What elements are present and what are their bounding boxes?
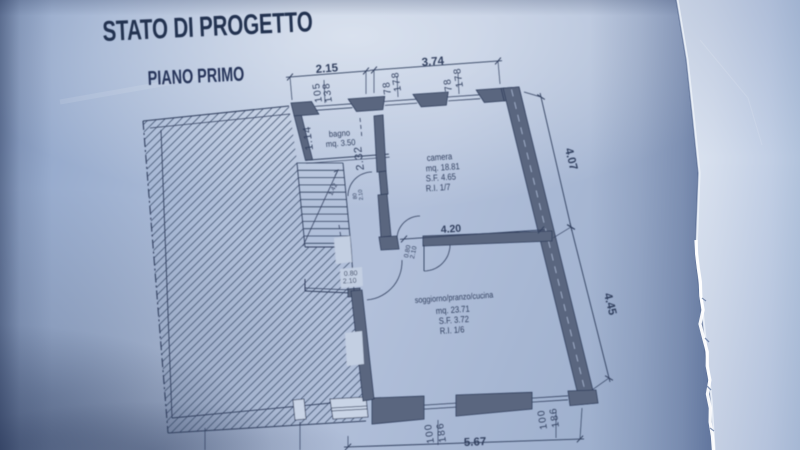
svg-text:138: 138 bbox=[321, 81, 335, 103]
svg-text:4.20: 4.20 bbox=[440, 223, 461, 236]
svg-text:178: 178 bbox=[452, 66, 466, 88]
svg-text:PIANO PRIMO: PIANO PRIMO bbox=[147, 62, 245, 89]
svg-text:186: 186 bbox=[548, 406, 562, 428]
svg-text:5.67: 5.67 bbox=[464, 436, 487, 449]
svg-text:R.I. 1/7: R.I. 1/7 bbox=[425, 181, 451, 193]
svg-text:STATO DI PROGETTO: STATO DI PROGETTO bbox=[102, 7, 314, 48]
svg-text:3.74: 3.74 bbox=[421, 55, 445, 69]
svg-text:2.10: 2.10 bbox=[343, 278, 357, 286]
svg-text:1.42: 1.42 bbox=[327, 182, 339, 197]
svg-text:soggiorno/pranzo/cucina: soggiorno/pranzo/cucina bbox=[414, 290, 494, 305]
svg-text:178: 178 bbox=[390, 70, 404, 92]
svg-text:2.15: 2.15 bbox=[315, 62, 339, 76]
svg-text:1.14: 1.14 bbox=[301, 125, 316, 151]
svg-text:2.10: 2.10 bbox=[409, 245, 419, 259]
svg-text:2.10: 2.10 bbox=[358, 189, 365, 200]
svg-text:4.07: 4.07 bbox=[562, 147, 579, 172]
svg-text:2.32: 2.32 bbox=[352, 145, 367, 171]
svg-text:R.I. 1/6: R.I. 1/6 bbox=[439, 324, 465, 336]
svg-text:186: 186 bbox=[435, 421, 449, 443]
